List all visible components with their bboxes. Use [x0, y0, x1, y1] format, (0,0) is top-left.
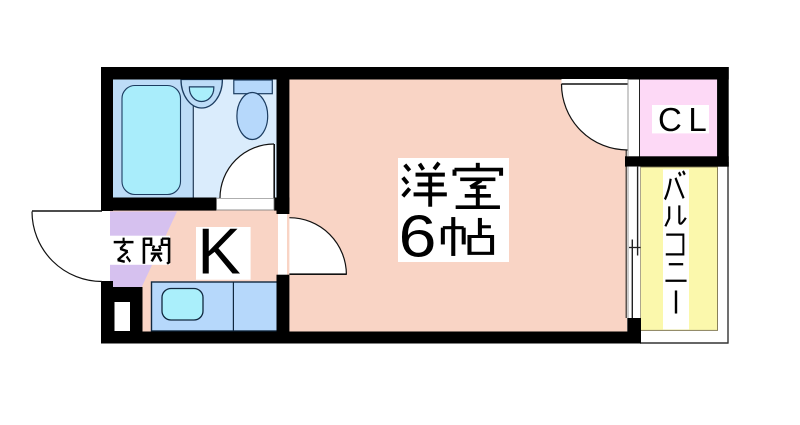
svg-text:6: 6: [399, 204, 437, 270]
svg-text:CL: CL: [658, 101, 713, 138]
svg-text:K: K: [197, 215, 240, 288]
